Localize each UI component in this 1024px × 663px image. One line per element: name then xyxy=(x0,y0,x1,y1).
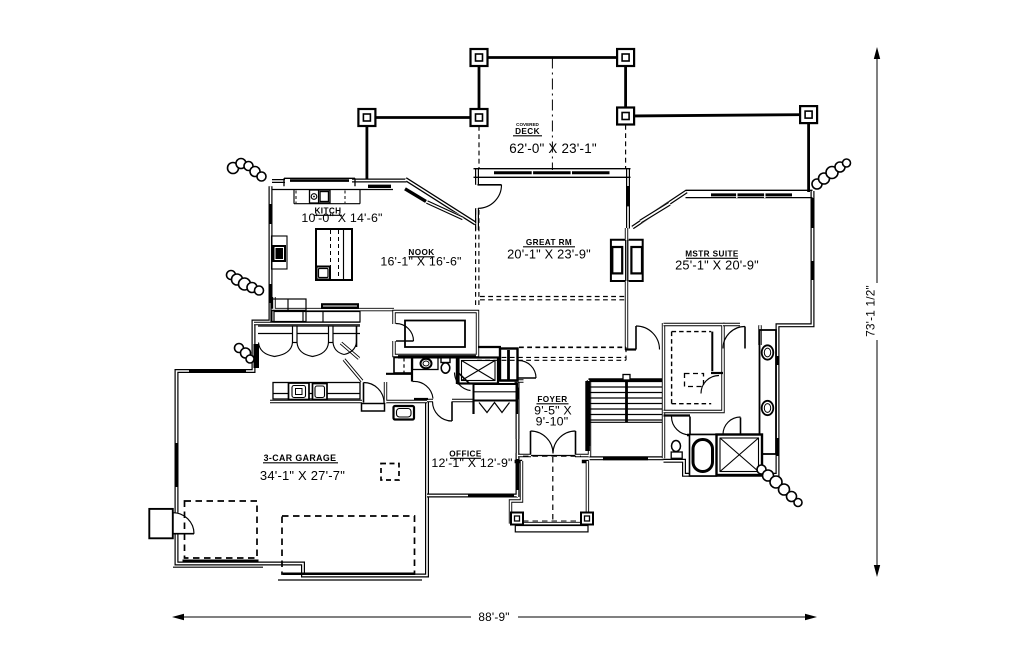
svg-text:DECK: DECK xyxy=(515,127,540,136)
svg-text:34'-1" X 27'-7": 34'-1" X 27'-7" xyxy=(260,468,345,483)
svg-text:62'-0" X 23'-1": 62'-0" X 23'-1" xyxy=(509,141,597,156)
svg-text:12'-1" X 12'-9": 12'-1" X 12'-9" xyxy=(431,456,512,470)
svg-text:9'-10": 9'-10" xyxy=(536,415,569,429)
svg-text:73'-1 1/2": 73'-1 1/2" xyxy=(864,285,878,337)
svg-text:20'-1" X 23'-9": 20'-1" X 23'-9" xyxy=(507,247,591,262)
svg-text:10'-0" X 14'-6": 10'-0" X 14'-6" xyxy=(301,211,382,225)
svg-text:88'-9": 88'-9" xyxy=(478,610,509,624)
svg-text:3-CAR GARAGE: 3-CAR GARAGE xyxy=(264,453,337,463)
svg-text:25'-1" X 20'-9": 25'-1" X 20'-9" xyxy=(675,258,759,273)
svg-text:16'-1" X 16'-6": 16'-1" X 16'-6" xyxy=(380,254,461,268)
